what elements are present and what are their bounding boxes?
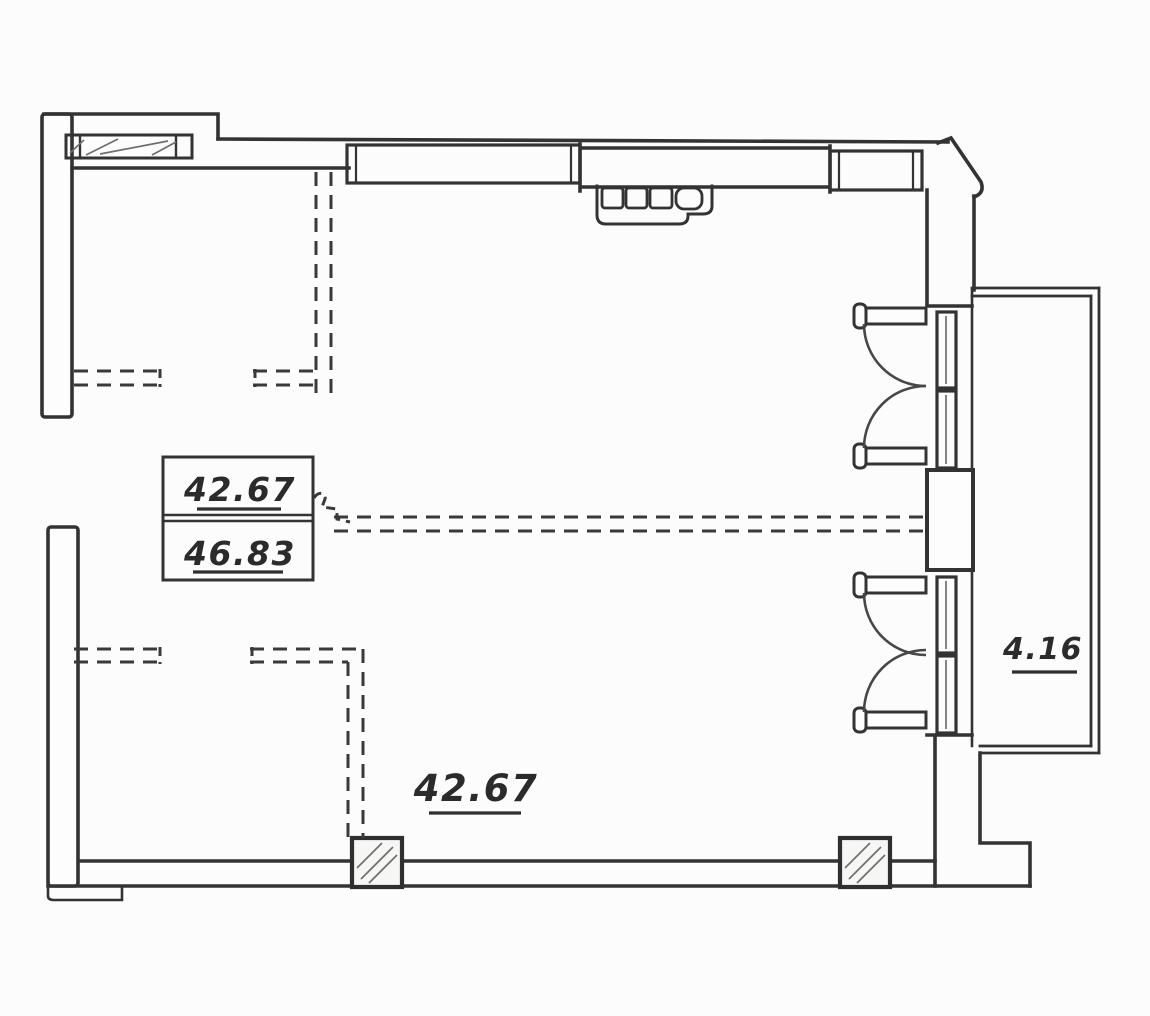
door-swing-arc-upper-1 [864,324,926,386]
wall-right-lower [935,737,1030,886]
wall-top-band [580,144,830,192]
area-table-value-2: 46.83 [183,534,296,573]
wall-top-outer [218,139,948,142]
wall-pier-middle [927,470,973,570]
window-top-right-caps [839,151,913,190]
door-swing-arc-lower-2 [864,650,926,712]
window-top-middle [347,145,580,183]
window-top-right-frame [830,151,922,190]
column-right [840,838,890,887]
dashed-lower-mid-segment [250,649,363,662]
balcony-right-edge [1091,288,1099,753]
wall-corner-chamfer [938,138,982,197]
wall-left-lower [48,527,78,886]
window-top-left-frame [66,135,192,158]
stove-burner-2 [626,188,647,208]
stove-outline [597,186,712,224]
balcony-bottom-edge [980,746,1099,753]
floor-plan-sheet: 42.67 46.83 42.67 4.16 [0,0,1150,1016]
stove-burner-3 [650,188,672,208]
floor-plan-drawing: 42.67 46.83 42.67 4.16 [0,0,1150,1016]
wall-right-inner-upper [927,190,972,306]
door-leaf-upper-2 [864,448,926,464]
window-top-left [66,135,192,158]
area-table-divider [163,515,313,521]
balcony [972,288,1099,753]
stove-symbol [597,186,712,224]
balcony-top-edge [972,288,1099,296]
door-swing-arc-lower-1 [864,593,926,655]
balcony-area-value: 4.16 [1002,632,1083,667]
dashed-upper-mid-segment [253,371,316,385]
balcony-door-upper [854,304,926,468]
room-area-value: 42.67 [413,767,539,810]
door-leaf-upper-1 [864,308,926,324]
column-left [352,838,402,887]
room-area-label: 42.67 [413,767,539,813]
area-table-value-1: 42.67 [183,470,296,509]
window-top-middle-caps [356,145,571,183]
dashed-lower-left-segment [74,649,162,662]
dashed-long-horizontal [334,517,927,531]
area-table: 42.67 46.83 [163,457,313,580]
windows [66,135,922,190]
door-leaf-lower-1 [864,577,926,593]
balcony-area-label: 4.16 [1002,632,1083,672]
window-top-middle-frame [347,145,580,183]
stove-burner-4 [676,188,702,209]
door-leaf-lower-2 [864,712,926,728]
window-top-left-glazing-hatch [70,139,176,155]
balcony-door-lower [854,573,926,732]
window-top-left-caps [80,135,176,158]
dashed-vertical-lower [348,649,363,838]
wall-bottom-left-foot [48,886,122,900]
dashed-upper-left-segment [74,371,162,385]
window-top-right [830,151,922,190]
stove-burner-1 [602,188,623,208]
door-swing-arc-upper-2 [864,386,926,448]
dashed-vertical-upper [316,172,331,393]
